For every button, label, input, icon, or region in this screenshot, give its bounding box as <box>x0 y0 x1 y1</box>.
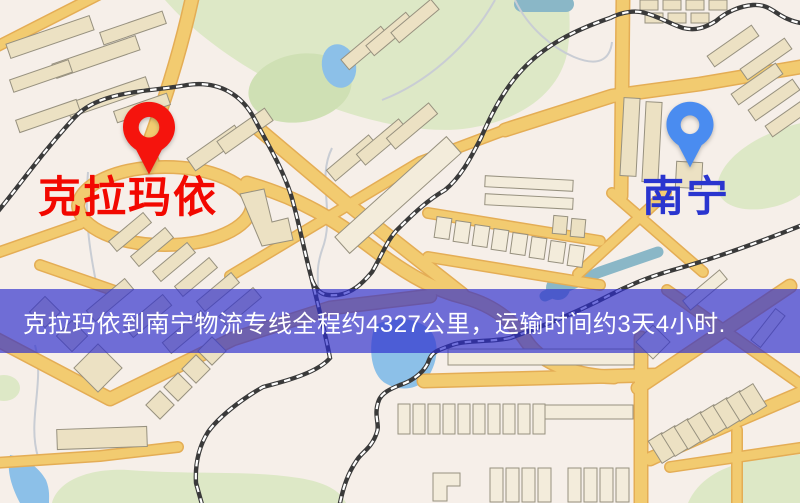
map-screenshot: 克拉玛依 南宁 克拉玛依到南宁物流专线全程约4327公里，运输时间约3天4小时. <box>0 0 800 503</box>
origin-map-pin-icon[interactable] <box>122 101 176 175</box>
origin-city-label: 克拉玛依 <box>38 177 218 220</box>
destination-city-label: 南宁 <box>642 176 730 218</box>
route-info-banner: 克拉玛依到南宁物流专线全程约4327公里，运输时间约3天4小时. <box>0 289 800 353</box>
map-background <box>0 0 800 503</box>
destination-map-pin-icon[interactable] <box>664 101 716 168</box>
route-info-text: 克拉玛依到南宁物流专线全程约4327公里，运输时间约3天4小时. <box>23 304 726 339</box>
